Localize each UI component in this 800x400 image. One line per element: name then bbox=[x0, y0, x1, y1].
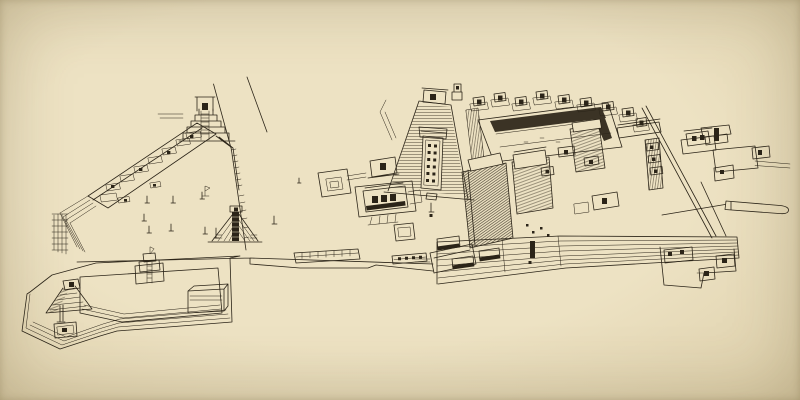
terrace-stela bbox=[529, 241, 536, 264]
plaza-east-wall bbox=[202, 136, 249, 250]
east-spur-platform bbox=[662, 201, 789, 215]
central-pyramid-masses bbox=[462, 119, 661, 248]
offering-altar bbox=[394, 223, 415, 241]
southeast-annex bbox=[660, 247, 736, 288]
causeway bbox=[77, 223, 433, 271]
south-platform-altar bbox=[54, 322, 77, 338]
south-platform bbox=[22, 247, 240, 349]
south-platform-pyramid bbox=[46, 279, 92, 322]
altar-row-terrace bbox=[60, 123, 216, 252]
radial-platform bbox=[208, 206, 262, 242]
tiered-altar bbox=[135, 247, 164, 284]
east-temple-group bbox=[645, 125, 790, 190]
survey-lines bbox=[214, 77, 268, 148]
great-plaza bbox=[52, 97, 301, 254]
plaza-stelae bbox=[142, 178, 301, 234]
reconstruction-drawing bbox=[0, 0, 800, 400]
west-gateway-tower bbox=[52, 214, 68, 254]
site-drawing-svg bbox=[0, 0, 800, 400]
